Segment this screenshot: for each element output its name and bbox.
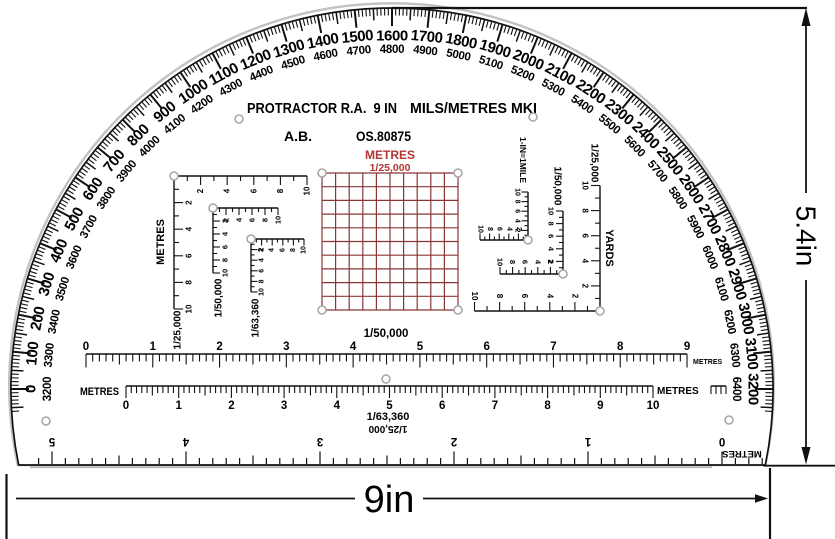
svg-text:6: 6 [249, 188, 258, 193]
svg-text:6: 6 [521, 260, 530, 264]
svg-text:10: 10 [259, 288, 266, 296]
svg-text:6: 6 [483, 341, 489, 353]
svg-text:OS.80875: OS.80875 [356, 129, 411, 144]
svg-text:8: 8 [581, 208, 590, 213]
svg-text:2: 2 [216, 341, 222, 353]
svg-text:8: 8 [290, 248, 297, 252]
svg-text:METRES: METRES [365, 148, 415, 162]
svg-text:2: 2 [514, 228, 521, 232]
svg-text:6: 6 [547, 234, 556, 238]
svg-text:10: 10 [274, 216, 283, 224]
svg-text:3: 3 [317, 435, 323, 447]
svg-text:1/63,360: 1/63,360 [251, 298, 262, 337]
svg-text:8: 8 [486, 227, 493, 231]
svg-text:10: 10 [496, 258, 505, 266]
svg-text:9in: 9in [364, 479, 415, 521]
svg-text:PROTRACTOR R.A. 9 IN: PROTRACTOR R.A. 9 IN [247, 101, 397, 117]
svg-text:4: 4 [269, 248, 276, 252]
svg-text:6: 6 [520, 294, 529, 299]
svg-text:6: 6 [496, 227, 503, 231]
svg-text:3: 3 [283, 341, 289, 353]
svg-text:10: 10 [514, 188, 521, 196]
svg-text:4: 4 [259, 258, 266, 262]
svg-text:6: 6 [514, 209, 521, 213]
svg-text:2: 2 [570, 294, 579, 299]
svg-text:5: 5 [417, 341, 424, 353]
svg-text:2: 2 [228, 400, 234, 412]
svg-text:4900: 4900 [413, 44, 438, 58]
svg-text:1/50,000: 1/50,000 [364, 328, 409, 340]
svg-text:6: 6 [259, 269, 266, 273]
svg-text:1/25,000: 1/25,000 [368, 423, 407, 434]
svg-text:4: 4 [514, 219, 521, 223]
svg-text:1: 1 [175, 400, 182, 412]
svg-text:5: 5 [48, 435, 55, 447]
svg-text:4800: 4800 [380, 44, 404, 56]
svg-text:8: 8 [514, 200, 521, 204]
svg-text:3200: 3200 [745, 373, 762, 405]
svg-text:0: 0 [719, 435, 725, 447]
svg-text:10: 10 [547, 207, 556, 215]
svg-text:100: 100 [23, 341, 42, 366]
svg-text:6: 6 [439, 400, 445, 412]
svg-text:4: 4 [223, 188, 232, 193]
svg-text:8: 8 [261, 218, 270, 222]
svg-text:1: 1 [150, 341, 157, 353]
svg-text:0: 0 [83, 341, 89, 353]
svg-text:4: 4 [350, 341, 357, 353]
svg-text:10: 10 [303, 186, 312, 195]
svg-text:MILS/METRES MKI: MILS/METRES MKI [410, 101, 537, 117]
svg-text:6: 6 [248, 218, 257, 222]
svg-text:1/50,000: 1/50,000 [214, 278, 225, 317]
svg-text:1/50,000: 1/50,000 [552, 167, 563, 206]
svg-text:1/63,360: 1/63,360 [367, 411, 410, 423]
svg-text:4: 4 [334, 400, 341, 412]
svg-text:10: 10 [221, 269, 230, 277]
svg-text:6: 6 [221, 245, 230, 249]
svg-text:6: 6 [581, 233, 590, 238]
svg-text:METRES: METRES [693, 359, 723, 366]
svg-text:3100: 3100 [741, 337, 761, 370]
svg-text:4: 4 [581, 259, 590, 264]
svg-text:METRES: METRES [80, 386, 119, 398]
svg-text:2: 2 [547, 259, 556, 263]
svg-text:10: 10 [470, 292, 479, 301]
svg-text:2: 2 [259, 248, 266, 252]
svg-text:10: 10 [301, 246, 308, 254]
svg-text:8: 8 [276, 188, 285, 193]
svg-text:9: 9 [597, 400, 603, 412]
svg-text:10: 10 [477, 225, 484, 233]
svg-text:1/25,000: 1/25,000 [173, 310, 184, 349]
svg-text:3200: 3200 [42, 377, 54, 401]
svg-text:2: 2 [221, 219, 230, 223]
svg-text:5.4in: 5.4in [791, 206, 822, 267]
svg-text:10: 10 [185, 304, 194, 313]
svg-text:8: 8 [508, 260, 517, 264]
svg-text:6300: 6300 [727, 343, 741, 368]
svg-text:4: 4 [182, 435, 189, 447]
svg-text:4: 4 [505, 227, 512, 231]
svg-text:8: 8 [185, 280, 194, 285]
svg-text:4: 4 [545, 294, 554, 299]
svg-text:9: 9 [684, 341, 690, 353]
svg-text:1600: 1600 [376, 28, 408, 45]
svg-text:7: 7 [492, 400, 498, 412]
svg-text:0: 0 [23, 385, 40, 393]
svg-text:1/25,000: 1/25,000 [370, 162, 411, 174]
svg-text:1: 1 [584, 435, 591, 447]
svg-text:8: 8 [547, 222, 556, 226]
svg-text:1/25,000: 1/25,000 [589, 144, 600, 183]
svg-text:METRES: METRES [657, 386, 699, 397]
svg-text:METRES: METRES [722, 448, 762, 459]
svg-text:10: 10 [581, 181, 590, 190]
svg-text:8: 8 [259, 279, 266, 283]
svg-text:A.B.: A.B. [284, 129, 312, 144]
svg-text:2: 2 [185, 200, 194, 205]
svg-text:2: 2 [581, 284, 590, 289]
svg-text:6: 6 [279, 248, 286, 252]
svg-text:3300: 3300 [43, 343, 57, 368]
svg-text:3: 3 [281, 400, 287, 412]
svg-text:6400: 6400 [730, 377, 742, 401]
svg-text:8: 8 [617, 341, 624, 353]
svg-text:2: 2 [451, 435, 457, 447]
svg-text:YARDS: YARDS [603, 229, 615, 267]
svg-text:8: 8 [221, 258, 230, 262]
svg-text:4700: 4700 [346, 44, 371, 58]
svg-text:6: 6 [185, 253, 194, 258]
svg-text:7: 7 [550, 341, 556, 353]
svg-text:8: 8 [544, 400, 551, 412]
svg-text:0: 0 [123, 400, 129, 412]
svg-text:8: 8 [495, 294, 504, 299]
svg-text:METRES: METRES [155, 219, 167, 265]
svg-text:2: 2 [196, 188, 205, 193]
svg-text:1-IN=1MILE: 1-IN=1MILE [518, 137, 528, 183]
svg-text:4: 4 [185, 226, 194, 231]
svg-text:10: 10 [647, 400, 660, 412]
